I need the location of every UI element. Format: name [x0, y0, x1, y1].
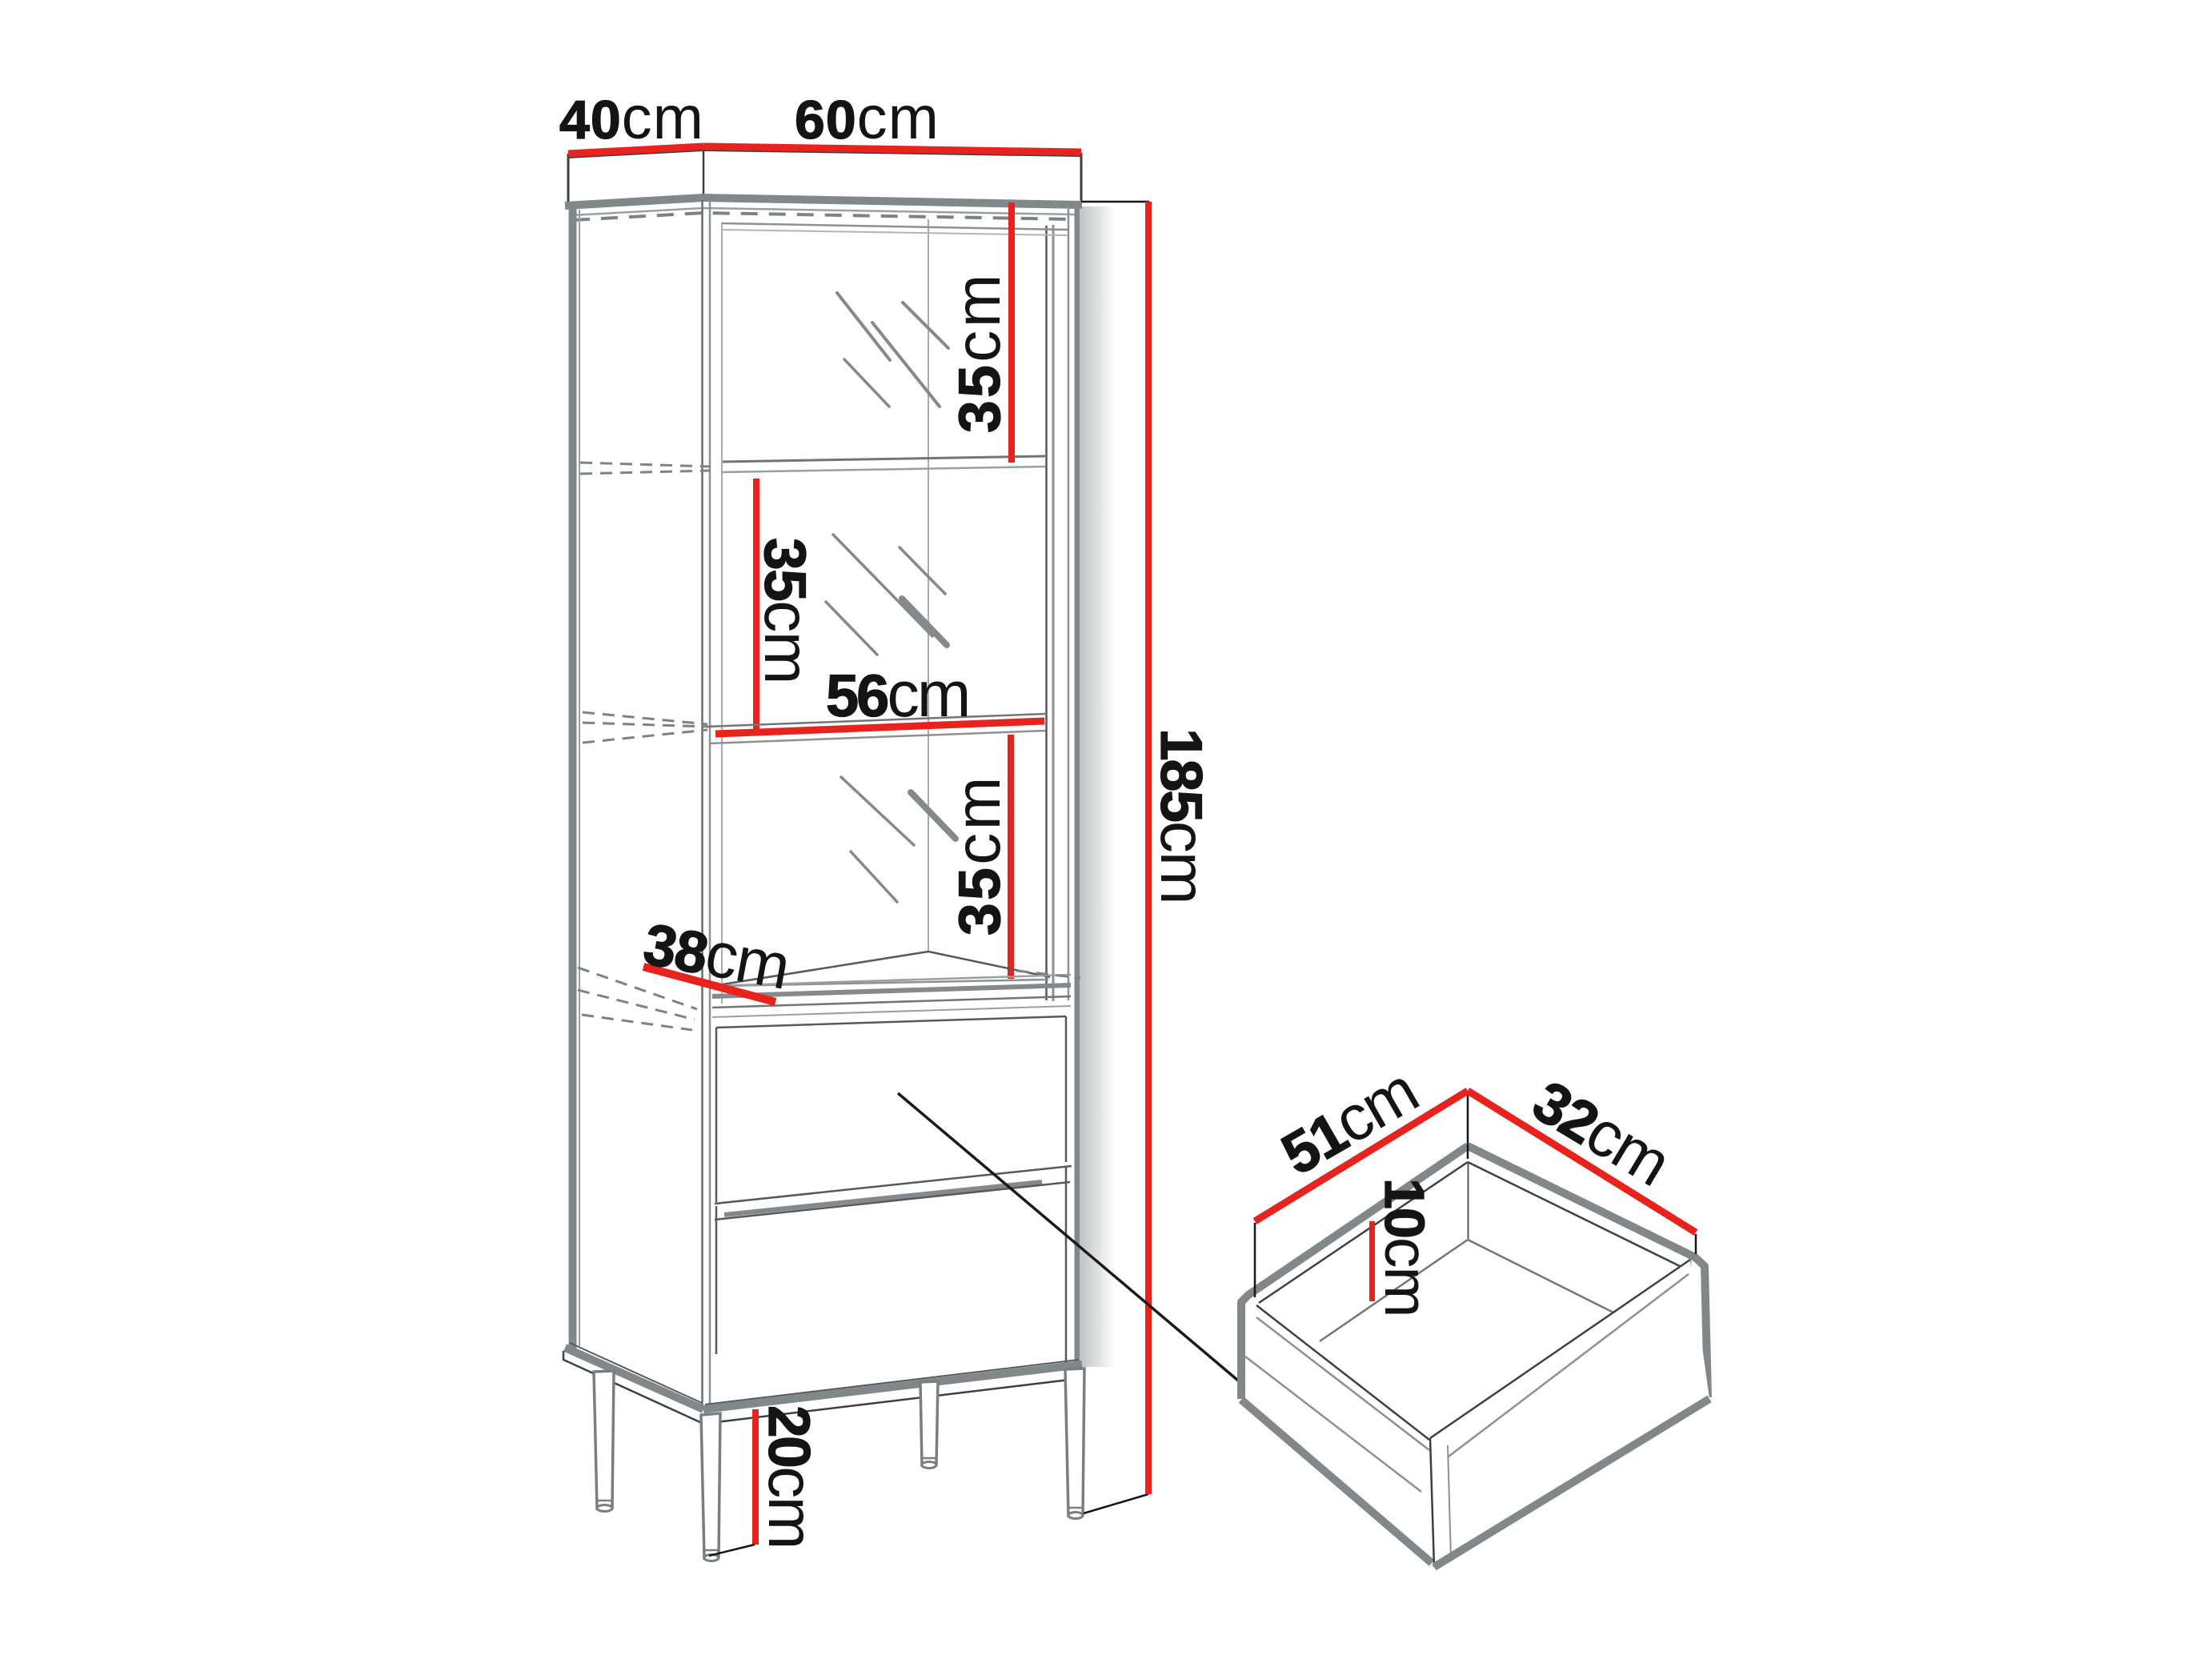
svg-text:35cm: 35cm	[751, 538, 823, 683]
svg-text:35cm: 35cm	[942, 271, 1013, 433]
svg-text:56cm: 56cm	[826, 659, 968, 731]
svg-text:20cm: 20cm	[755, 1405, 827, 1548]
svg-text:60cm: 60cm	[795, 84, 940, 152]
svg-text:40cm: 40cm	[559, 84, 704, 152]
svg-text:185cm: 185cm	[1148, 728, 1219, 903]
svg-text:35cm: 35cm	[942, 774, 1013, 936]
svg-text:10cm: 10cm	[1372, 1178, 1441, 1316]
